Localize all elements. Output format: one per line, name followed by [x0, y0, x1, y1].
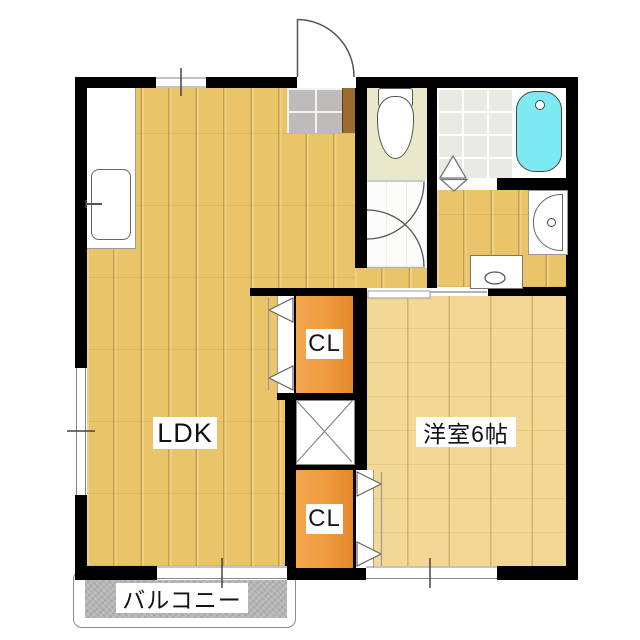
window-ldk-balcony-opening [157, 566, 287, 580]
wall-closet-left [285, 393, 296, 568]
window-left-opening [75, 368, 87, 495]
balcony-label-text: バルコニー [122, 581, 242, 615]
bathroom-floor [437, 88, 512, 178]
bathtub-drain [535, 100, 545, 110]
floor-plan: LDK 洋室6帖 CL CL バルコニー [0, 0, 640, 640]
wall-left [75, 77, 87, 580]
wall-closet-right [353, 296, 367, 470]
wall-ldk-divider [250, 288, 367, 296]
ldk-hall-strip [355, 268, 427, 290]
wall-right [566, 77, 578, 580]
entrance-door-swing [298, 19, 355, 77]
wall-toilet-right [427, 88, 437, 296]
closet-upper-label: CL [306, 329, 343, 359]
kitchen-sink [91, 169, 131, 240]
wall-toilet-left [355, 88, 367, 268]
western-room-label: 洋室6帖 [416, 417, 516, 447]
window-western-opening [366, 566, 497, 580]
window-top-opening [156, 77, 206, 88]
closet-lower-label: CL [306, 504, 343, 534]
balcony-label: バルコニー [116, 583, 248, 613]
western-door-opening [367, 288, 488, 296]
closet-upper-label-text: CL [308, 330, 341, 358]
bathroom-door-opening [437, 178, 497, 190]
wall-bath-washroom [497, 178, 566, 190]
western-room-label-text: 洋室6帖 [423, 415, 509, 449]
ldk-label-text: LDK [157, 418, 213, 449]
hallway-floor [367, 182, 427, 268]
wall-bottom [75, 566, 578, 580]
ldk-label: LDK [153, 417, 217, 449]
washbasin-faucet-dot [547, 218, 556, 227]
washing-machine-pan [470, 255, 523, 289]
closet-lower-label-text: CL [308, 505, 341, 533]
closet-lower-door-strip [356, 470, 374, 568]
pipe-shaft-box [296, 400, 355, 465]
entrance-door-opening [297, 77, 356, 88]
genkan-tiles [287, 88, 342, 133]
wall-closet-div1 [277, 393, 367, 400]
closet-upper-door-strip [277, 296, 294, 393]
